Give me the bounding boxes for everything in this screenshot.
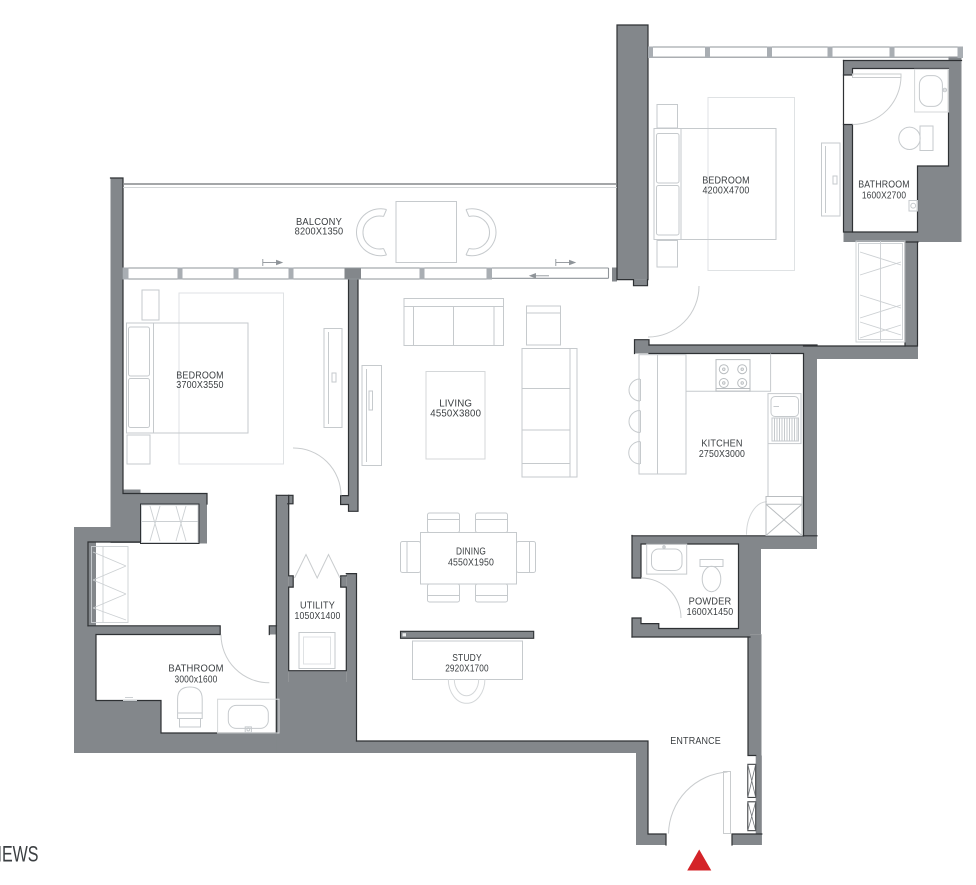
svg-text:1600X1450: 1600X1450 xyxy=(687,607,734,618)
svg-text:BATHROOM: BATHROOM xyxy=(168,663,223,674)
svg-text:8200X1350: 8200X1350 xyxy=(295,227,344,238)
svg-text:4550X1950: 4550X1950 xyxy=(448,557,494,568)
svg-text:BATHROOM: BATHROOM xyxy=(858,180,910,191)
svg-text:POWDER: POWDER xyxy=(689,596,732,607)
svg-text:4200X4700: 4200X4700 xyxy=(703,186,750,197)
svg-text:STUDY: STUDY xyxy=(452,653,482,664)
svg-text:1600X2700: 1600X2700 xyxy=(862,191,906,202)
svg-text:ENTRANCE: ENTRANCE xyxy=(670,736,721,747)
svg-text:3700X3550: 3700X3550 xyxy=(176,380,223,391)
svg-text:IEWS: IEWS xyxy=(0,842,39,867)
svg-text:1050X1400: 1050X1400 xyxy=(295,611,341,622)
svg-text:4550X3800: 4550X3800 xyxy=(430,409,481,420)
svg-text:2750X3000: 2750X3000 xyxy=(699,449,745,460)
svg-text:3000x1600: 3000x1600 xyxy=(175,674,218,685)
svg-text:2920X1700: 2920X1700 xyxy=(445,663,489,674)
svg-text:DINING: DINING xyxy=(456,547,486,558)
